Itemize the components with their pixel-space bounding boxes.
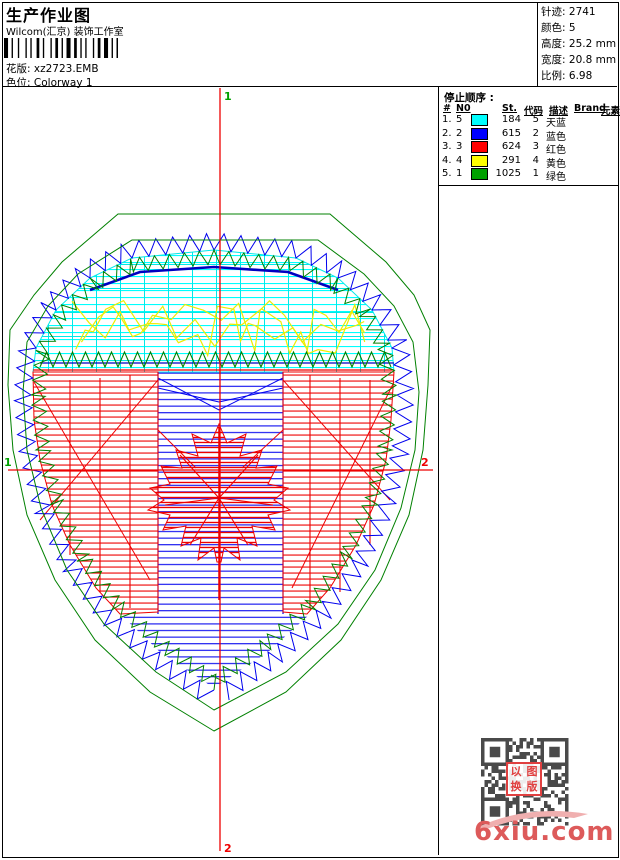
header-divider-vertical <box>537 3 538 86</box>
thread-color-swatch <box>471 168 488 180</box>
design-file-value: xz2723.EMB <box>34 63 99 75</box>
row-n0: 2 <box>456 128 462 139</box>
thread-color-swatch <box>471 141 488 153</box>
stat-stitches: 针迹: 2741 <box>541 4 616 20</box>
stamp-character: 图 <box>527 765 538 778</box>
design-file-label: 花版: <box>6 63 31 75</box>
stamp-character: 版 <box>527 780 538 793</box>
row-code: 2 <box>523 128 539 139</box>
col-st: St. <box>502 103 517 114</box>
row-code: 1 <box>523 168 539 179</box>
row-n0: 4 <box>456 155 462 166</box>
row-n0: 1 <box>456 168 462 179</box>
colorway-label: 色位: <box>6 77 31 89</box>
design-file-row: 花版: xz2723.EMB <box>6 61 99 76</box>
row-seq: 4. <box>442 155 452 166</box>
col-seq: # <box>443 103 451 114</box>
row-n0: 3 <box>456 141 462 152</box>
stop-sequence-row: 4.42914黄色 <box>438 155 620 169</box>
stat-height: 高度: 25.2 mm <box>541 36 616 52</box>
stamp-character: 换 <box>511 780 522 793</box>
red-seal-stamp: 以图换版 <box>506 762 542 796</box>
row-stitches: 624 <box>488 141 521 152</box>
design-stats: 针迹: 2741 颜色: 5 高度: 25.2 mm 宽度: 20.8 mm 比… <box>541 4 616 84</box>
header-divider-horizontal <box>3 86 617 87</box>
stat-width: 宽度: 20.8 mm <box>541 52 616 68</box>
row-seq: 5. <box>442 168 452 179</box>
stop-sequence-row: 5.110251绿色 <box>438 168 620 182</box>
colorway-value: Colorway 1 <box>34 77 93 89</box>
row-n0: 5 <box>456 114 462 125</box>
stop-sequence-row: 2.26152蓝色 <box>438 128 620 142</box>
row-seq: 1. <box>442 114 452 125</box>
thread-color-swatch <box>471 114 488 126</box>
barcode-image <box>4 38 118 58</box>
panel-divider-vertical <box>438 87 439 855</box>
row-stitches: 615 <box>488 128 521 139</box>
row-description: 绿色 <box>546 168 566 183</box>
row-code: 3 <box>523 141 539 152</box>
stop-sequence-rows: 1.51845天蓝2.26152蓝色3.36243红色4.42914黄色5.11… <box>438 114 620 182</box>
row-stitches: 291 <box>488 155 521 166</box>
production-worksheet-page: { "header": { "title": "生产作业图", "studio"… <box>0 0 620 860</box>
row-stitches: 184 <box>488 114 521 125</box>
row-code: 4 <box>523 155 539 166</box>
watermark-text: 6xiu.com <box>474 817 615 847</box>
thread-color-swatch <box>471 155 488 167</box>
col-n0: N0 <box>456 103 471 114</box>
row-seq: 3. <box>442 141 452 152</box>
stat-scale: 比例: 6.98 <box>541 68 616 84</box>
studio-name: Wilcom(汇京) 装饰工作室 <box>6 23 124 38</box>
stop-sequence-row: 1.51845天蓝 <box>438 114 620 128</box>
stop-sequence-bottom-line <box>438 185 618 186</box>
stamp-character: 以 <box>511 765 522 778</box>
row-stitches: 1025 <box>488 168 521 179</box>
row-code: 5 <box>523 114 539 125</box>
row-seq: 2. <box>442 128 452 139</box>
stop-sequence-row: 3.36243红色 <box>438 141 620 155</box>
colorway-row: 色位: Colorway 1 <box>6 75 93 90</box>
thread-color-swatch <box>471 128 488 140</box>
stat-colors: 颜色: 5 <box>541 20 616 36</box>
